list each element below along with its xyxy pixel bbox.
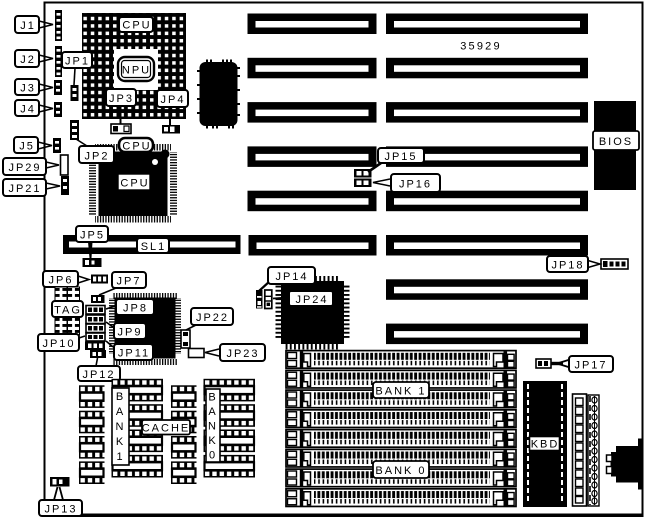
svg-text:JP14: JP14 xyxy=(275,271,308,283)
svg-text:NPU: NPU xyxy=(122,65,151,77)
svg-text:BIOS: BIOS xyxy=(599,136,633,148)
svg-text:JP24: JP24 xyxy=(295,294,328,306)
svg-text:JP17: JP17 xyxy=(574,360,607,372)
svg-text:JP15: JP15 xyxy=(384,151,417,163)
svg-text:JP18: JP18 xyxy=(551,260,584,272)
svg-text:K: K xyxy=(116,436,125,448)
svg-text:J4: J4 xyxy=(20,104,36,116)
svg-text:JP7: JP7 xyxy=(117,276,142,288)
svg-text:JP29: JP29 xyxy=(8,162,41,174)
svg-text:JP3: JP3 xyxy=(109,93,134,105)
svg-text:1: 1 xyxy=(116,451,124,463)
svg-text:TAG: TAG xyxy=(54,305,82,317)
svg-text:JP16: JP16 xyxy=(399,179,432,191)
svg-text:JP8: JP8 xyxy=(123,303,148,315)
svg-text:SL1: SL1 xyxy=(141,241,167,253)
svg-text:JP4: JP4 xyxy=(161,94,186,106)
svg-text:K: K xyxy=(208,435,217,447)
svg-text:JP5: JP5 xyxy=(80,230,105,242)
svg-text:JP9: JP9 xyxy=(118,327,143,339)
svg-text:A: A xyxy=(116,406,125,418)
svg-text:JP6: JP6 xyxy=(49,275,74,287)
svg-text:N: N xyxy=(116,421,126,433)
svg-text:A: A xyxy=(208,406,217,418)
svg-text:B: B xyxy=(116,391,125,403)
svg-text:CPU: CPU xyxy=(122,20,151,32)
svg-text:JP21: JP21 xyxy=(8,183,41,195)
svg-text:BANK 1: BANK 1 xyxy=(375,386,426,398)
svg-text:J3: J3 xyxy=(20,83,36,95)
svg-text:0: 0 xyxy=(209,450,217,462)
svg-text:KBD: KBD xyxy=(531,439,560,451)
svg-text:J5: J5 xyxy=(19,141,35,153)
svg-text:JP1: JP1 xyxy=(65,56,90,68)
svg-text:J1: J1 xyxy=(20,20,36,32)
svg-text:N: N xyxy=(208,421,218,433)
svg-text:J2: J2 xyxy=(20,54,36,66)
svg-text:JP10: JP10 xyxy=(42,338,75,350)
svg-text:B: B xyxy=(208,392,217,404)
svg-text:JP2: JP2 xyxy=(85,151,110,163)
svg-text:JP11: JP11 xyxy=(118,348,150,360)
svg-text:BANK 0: BANK 0 xyxy=(375,465,426,477)
svg-text:JP13: JP13 xyxy=(44,504,77,516)
svg-text:35929: 35929 xyxy=(460,41,502,53)
svg-text:CACHE: CACHE xyxy=(142,423,191,435)
svg-text:JP22: JP22 xyxy=(196,312,229,324)
svg-text:CPU: CPU xyxy=(120,178,149,190)
svg-text:JP12: JP12 xyxy=(82,369,115,381)
svg-text:JP23: JP23 xyxy=(226,348,259,360)
svg-text:CPU: CPU xyxy=(122,141,151,153)
